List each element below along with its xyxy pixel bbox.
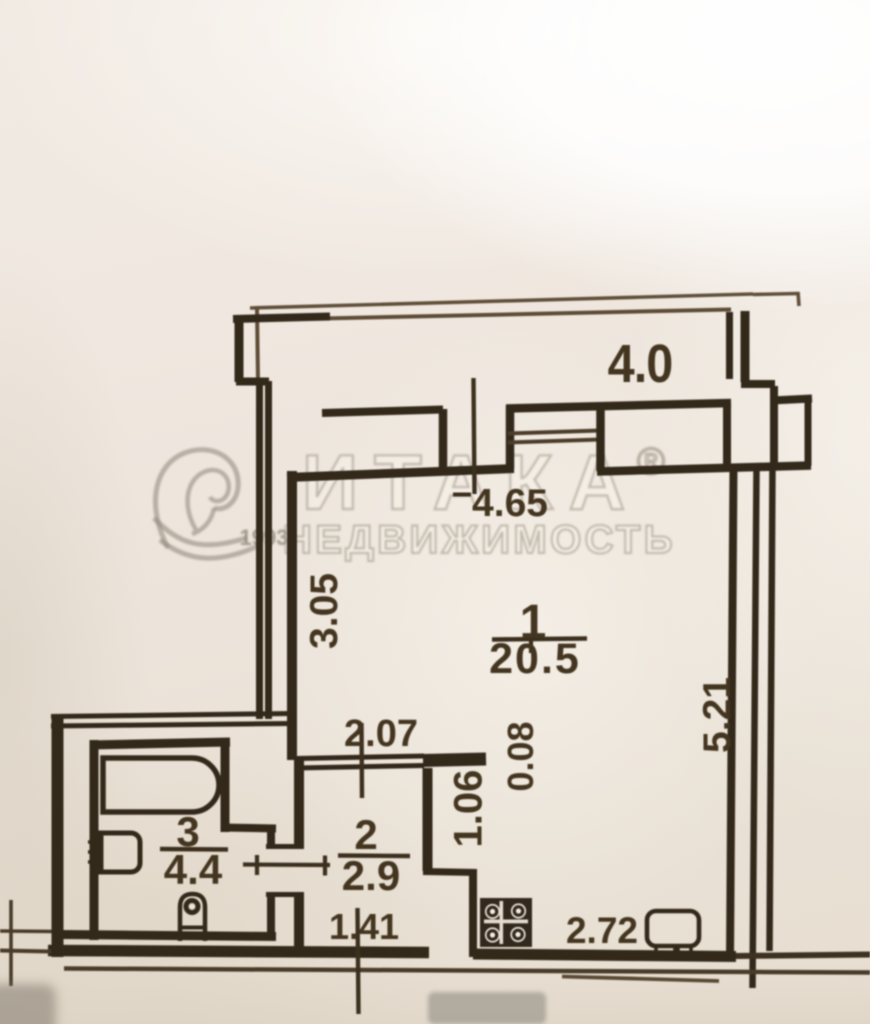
- svg-text:1.41: 1.41: [329, 906, 399, 947]
- svg-text:1.06: 1.06: [447, 770, 491, 848]
- svg-text:2: 2: [354, 811, 377, 858]
- svg-text:4.65: 4.65: [472, 482, 548, 525]
- svg-text:4.0: 4.0: [608, 333, 673, 394]
- svg-text:0.08: 0.08: [500, 721, 541, 791]
- svg-text:20.5: 20.5: [489, 635, 581, 683]
- svg-text:2.07: 2.07: [344, 713, 418, 755]
- svg-text:2.72: 2.72: [566, 910, 638, 951]
- svg-text:4.4: 4.4: [164, 846, 223, 893]
- svg-text:2.9: 2.9: [342, 852, 400, 899]
- svg-text:5.21: 5.21: [696, 677, 739, 753]
- svg-text:3.05: 3.05: [303, 573, 346, 649]
